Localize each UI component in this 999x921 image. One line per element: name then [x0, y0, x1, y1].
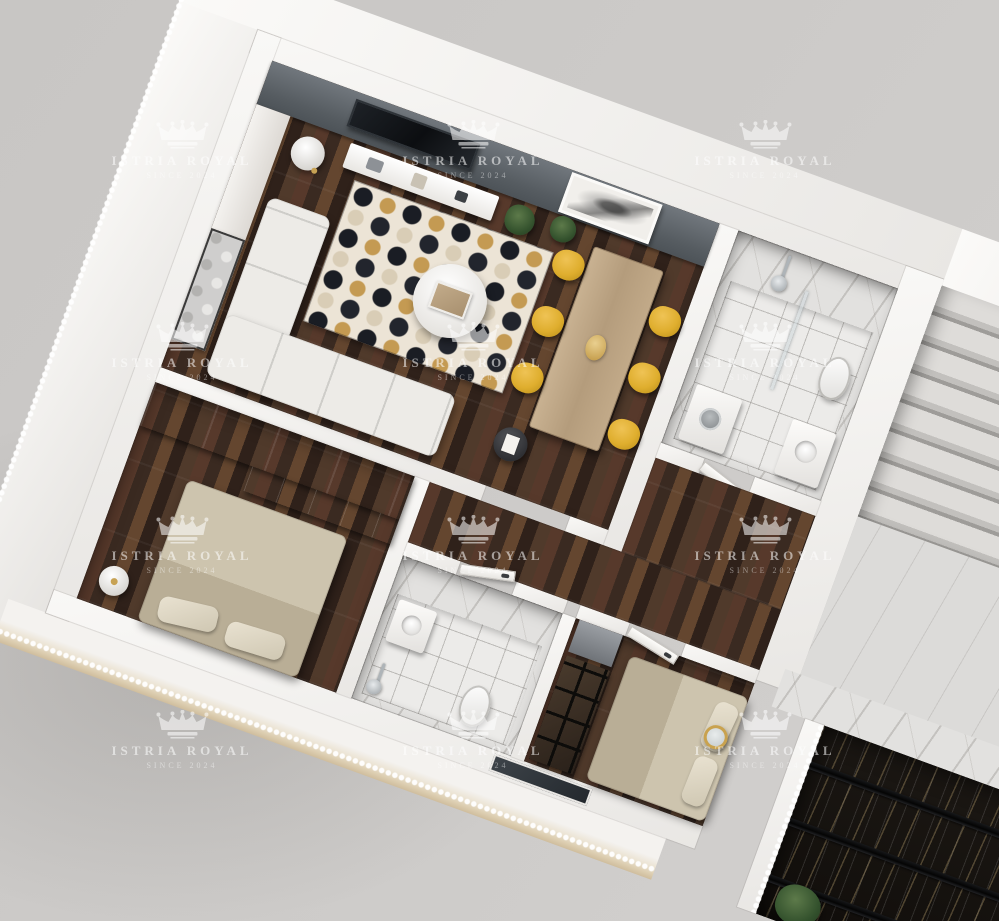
dining-chair	[624, 359, 664, 398]
floor-lamp	[286, 132, 330, 176]
console-decor	[410, 172, 428, 190]
washer-door	[696, 405, 724, 433]
dining-chair	[604, 415, 644, 454]
door-handle	[663, 652, 672, 660]
shower-head-icon	[768, 273, 789, 294]
sink-basin	[792, 438, 820, 466]
dining-chair	[645, 302, 685, 341]
side-table-cards	[501, 434, 520, 456]
floor-plan-render: ISTRIA ROYAL SINCE 2024 ISTRIA ROYAL SIN…	[0, 0, 999, 921]
crown-icon	[738, 710, 792, 740]
dark-side-table	[489, 423, 533, 467]
door-handle	[501, 573, 509, 578]
crown-icon	[738, 120, 792, 150]
potted-plant	[501, 201, 539, 239]
console-decor	[365, 157, 384, 174]
floor-lamp-stem	[310, 167, 318, 175]
console-decor	[454, 190, 469, 204]
sink-basin	[399, 613, 425, 639]
coffee-table-tray	[428, 280, 473, 319]
